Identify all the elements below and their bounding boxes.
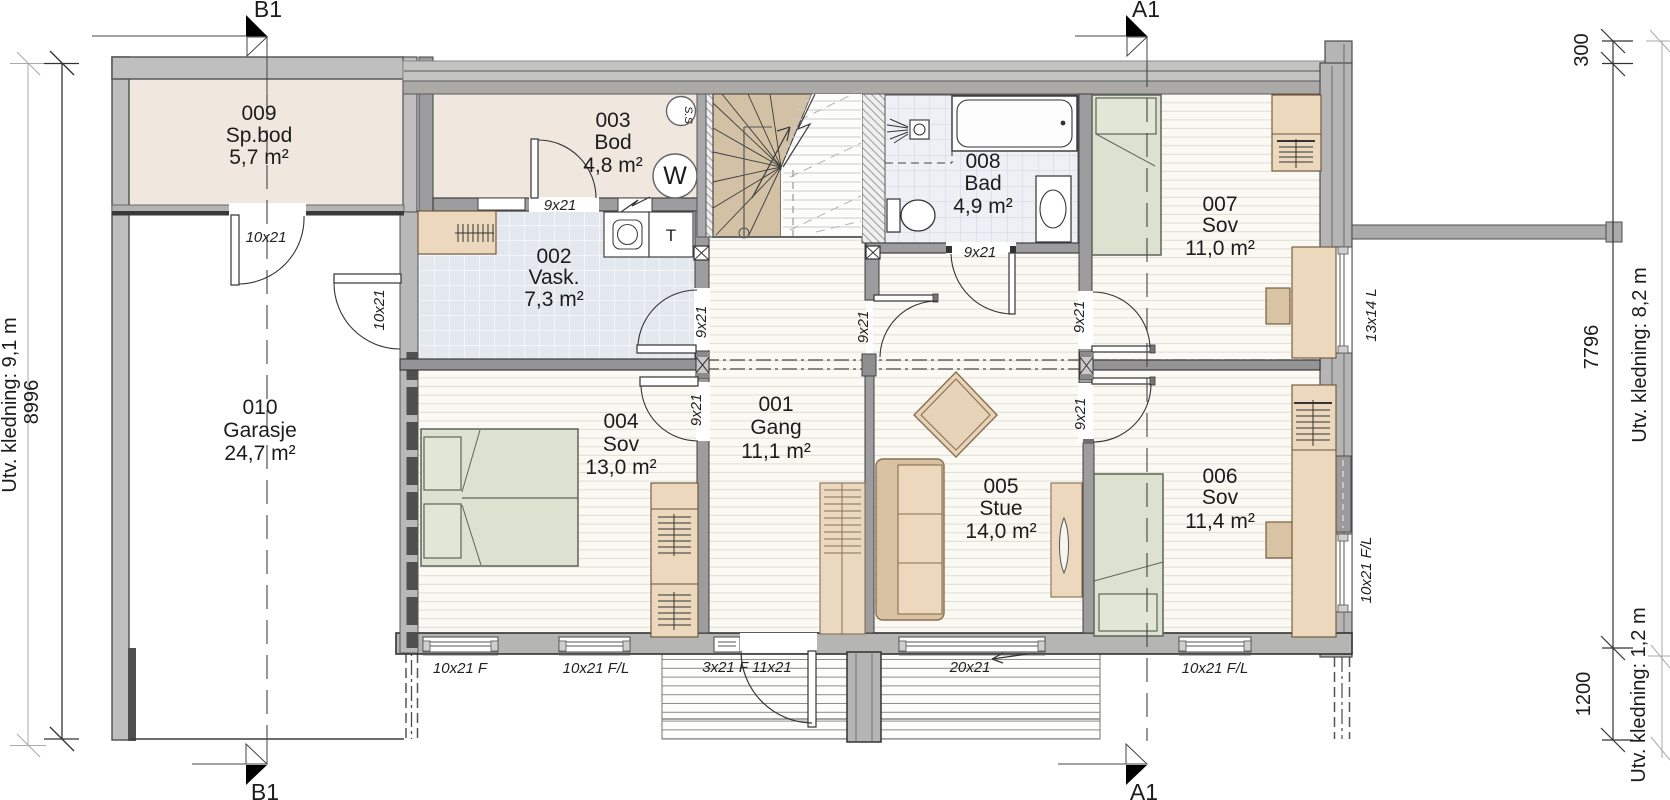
svg-text:Bad: Bad [964,172,1001,195]
svg-text:1200: 1200 [1573,672,1595,717]
svg-text:10x21 F/L: 10x21 F/L [563,660,630,677]
svg-text:10x21 F/L: 10x21 F/L [1182,660,1249,677]
svg-text:9x21: 9x21 [1071,301,1088,334]
svg-text:Utv. kledning: 1,2 m: Utv. kledning: 1,2 m [1628,607,1650,782]
svg-text:Sov: Sov [603,433,640,456]
svg-text:005: 005 [983,475,1018,498]
svg-text:Utv. kledning: 9,1 m: Utv. kledning: 9,1 m [0,317,21,492]
svg-text:001: 001 [758,393,793,416]
svg-text:10x21 F/L: 10x21 F/L [1358,537,1375,604]
svg-text:S.S: S.S [682,106,694,124]
svg-text:Garasje: Garasje [223,419,297,442]
svg-text:Bod: Bod [594,131,631,154]
svg-text:11,0 m²: 11,0 m² [1185,237,1255,260]
svg-text:B1: B1 [254,0,282,22]
svg-text:4,9 m²: 4,9 m² [953,195,1013,218]
svg-text:W: W [663,162,687,190]
svg-text:Gang: Gang [750,416,801,439]
svg-text:11,1 m²: 11,1 m² [741,440,811,463]
svg-text:Vask.: Vask. [529,266,580,289]
svg-text:14,0 m²: 14,0 m² [965,520,1036,543]
svg-text:006: 006 [1202,465,1237,488]
svg-text:5,7 m²: 5,7 m² [229,146,289,169]
svg-text:13x14 L: 13x14 L [1363,288,1380,341]
svg-text:010: 010 [242,396,277,419]
svg-text:002: 002 [536,245,571,268]
svg-text:A1: A1 [1130,779,1158,800]
svg-text:7,3 m²: 7,3 m² [524,288,584,311]
svg-text:7796: 7796 [1581,325,1603,370]
svg-text:008: 008 [965,150,1000,173]
svg-text:3x21 F 11x21: 3x21 F 11x21 [702,659,792,676]
svg-text:24,7 m²: 24,7 m² [224,442,295,465]
svg-text:Stue: Stue [979,497,1022,520]
svg-text:10x21: 10x21 [371,290,388,331]
svg-text:13,0 m²: 13,0 m² [585,456,656,479]
svg-text:9x21: 9x21 [964,244,997,261]
svg-text:4,8 m²: 4,8 m² [583,154,643,177]
svg-text:11,4 m²: 11,4 m² [1185,510,1255,533]
svg-text:9x21: 9x21 [1072,398,1089,431]
svg-text:20x21: 20x21 [949,659,991,676]
svg-text:10x21: 10x21 [246,229,287,246]
svg-text:9x21: 9x21 [693,306,710,339]
svg-text:003: 003 [595,109,630,132]
svg-text:B1: B1 [251,779,279,800]
svg-text:8996: 8996 [21,380,43,425]
svg-text:9x21: 9x21 [855,311,872,344]
svg-text:A1: A1 [1132,0,1160,22]
svg-text:Utv. kledning: 8,2 m: Utv. kledning: 8,2 m [1629,267,1651,442]
svg-text:10x21 F: 10x21 F [433,660,488,677]
svg-text:Sp.bod: Sp.bod [226,124,293,147]
svg-text:T: T [666,226,676,245]
svg-text:004: 004 [603,410,638,433]
svg-text:9x21: 9x21 [688,394,705,427]
svg-text:Sov: Sov [1202,214,1239,237]
svg-text:300: 300 [1571,33,1593,66]
svg-text:Sov: Sov [1202,486,1239,509]
svg-text:9x21: 9x21 [544,197,577,214]
svg-text:007: 007 [1202,193,1237,216]
svg-text:009: 009 [241,102,276,125]
